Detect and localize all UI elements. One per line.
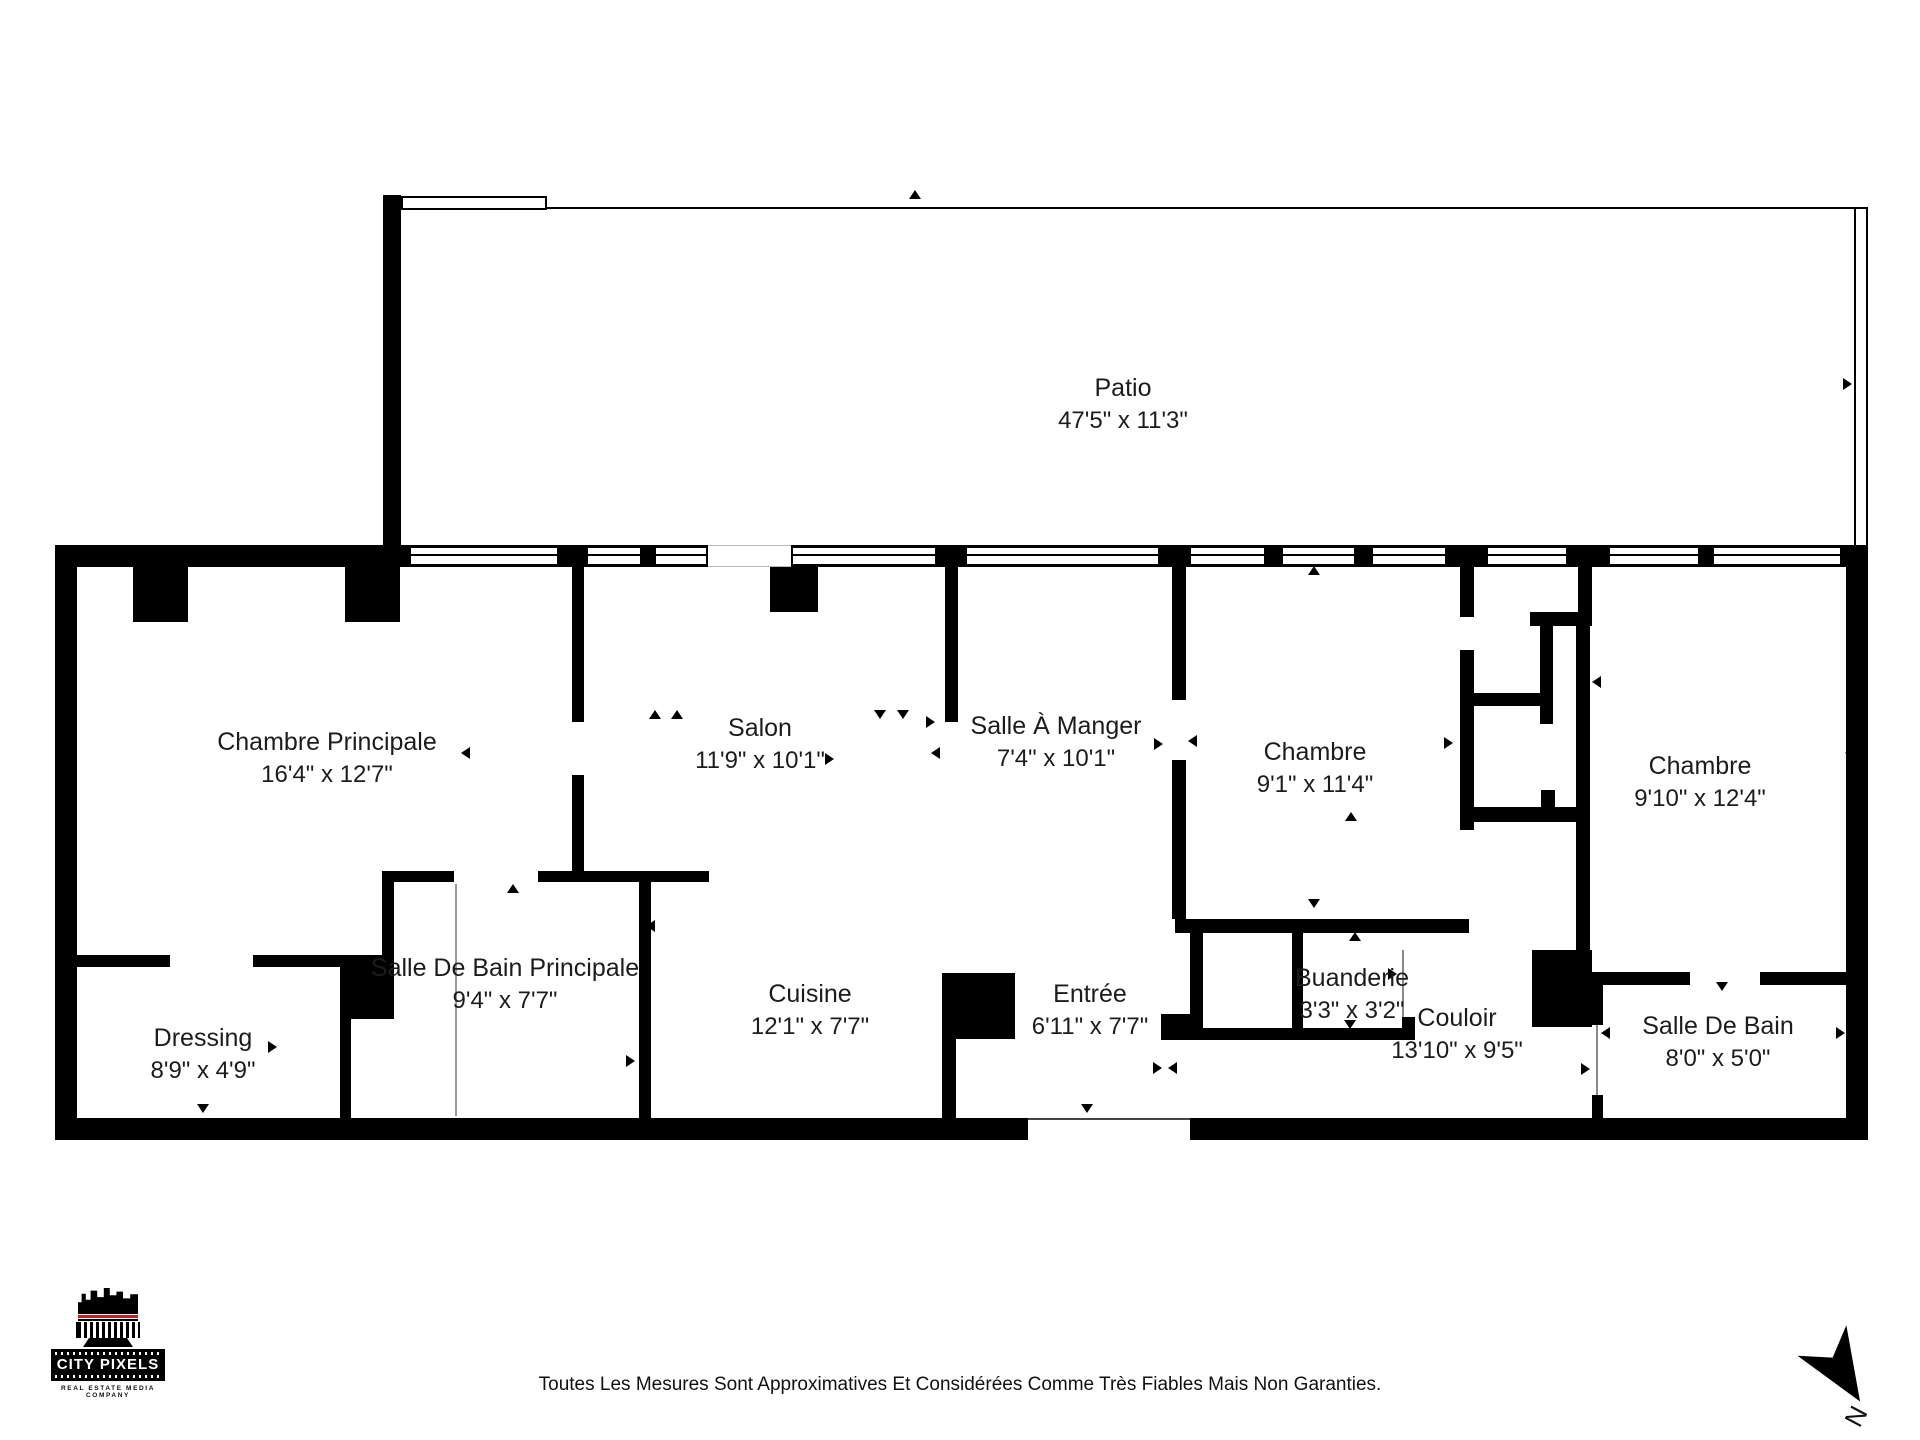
logo-tagline: REAL ESTATE MEDIA COMPANY bbox=[50, 1385, 166, 1399]
room-label-salon: Salon11'9" x 10'1" bbox=[695, 712, 825, 777]
door-marker-icon bbox=[1081, 1104, 1093, 1113]
wall bbox=[345, 567, 400, 622]
door-marker-icon bbox=[874, 710, 886, 719]
wall bbox=[340, 1019, 351, 1118]
wall bbox=[1592, 985, 1603, 1025]
door-marker-icon bbox=[931, 747, 940, 759]
window bbox=[1486, 546, 1568, 566]
wall bbox=[1172, 567, 1186, 700]
window bbox=[586, 546, 642, 566]
room-label-dressing: Dressing8'9" x 4'9" bbox=[151, 1022, 256, 1087]
window bbox=[1608, 546, 1700, 566]
door-marker-icon bbox=[926, 716, 935, 728]
room-label-cuisine: Cuisine12'1" x 7'7" bbox=[751, 978, 869, 1043]
wall bbox=[1592, 1095, 1603, 1118]
wall bbox=[1541, 790, 1555, 807]
door-marker-icon bbox=[1845, 747, 1854, 759]
north-arrow-icon bbox=[1791, 1321, 1890, 1420]
wall bbox=[1576, 612, 1590, 985]
wall bbox=[1460, 693, 1540, 706]
patio-railing bbox=[1854, 207, 1868, 547]
wall bbox=[1175, 919, 1469, 933]
room-label-salle-de-bain: Salle De Bain8'0" x 5'0" bbox=[1642, 1010, 1793, 1075]
logo-skyline-icon bbox=[78, 1288, 138, 1314]
wall bbox=[639, 880, 651, 1118]
window bbox=[1189, 546, 1266, 566]
room-label-entree: Entrée6'11" x 7'7" bbox=[1032, 978, 1149, 1043]
entry-opening-line bbox=[1028, 1118, 1190, 1120]
patio-edge-line bbox=[546, 207, 1858, 209]
wall bbox=[1190, 1028, 1415, 1040]
wall bbox=[1578, 567, 1592, 612]
door-marker-icon bbox=[461, 747, 470, 759]
door-marker-icon bbox=[58, 1041, 67, 1053]
wall bbox=[1846, 545, 1868, 1140]
door-marker-icon bbox=[1444, 737, 1453, 749]
logo-film-strip: CITY PIXELS bbox=[51, 1349, 165, 1381]
wall bbox=[55, 1118, 1028, 1140]
door-marker-icon bbox=[1345, 812, 1357, 821]
wall bbox=[1760, 972, 1868, 985]
door-marker-icon bbox=[825, 753, 834, 765]
door-marker-icon bbox=[1154, 738, 1163, 750]
wall bbox=[1472, 807, 1576, 822]
door-marker-icon bbox=[1592, 676, 1601, 688]
logo-red-stripe bbox=[78, 1315, 138, 1318]
window bbox=[409, 546, 559, 566]
door-marker-icon bbox=[897, 710, 909, 719]
door-marker-icon bbox=[1601, 1027, 1610, 1039]
door-marker-icon bbox=[671, 710, 683, 719]
door-marker-icon bbox=[268, 1041, 277, 1053]
door-marker-icon bbox=[1349, 932, 1361, 941]
wall bbox=[55, 955, 170, 967]
wall bbox=[1161, 1014, 1190, 1040]
door-marker-icon bbox=[1188, 735, 1197, 747]
compass: N bbox=[1795, 1335, 1905, 1440]
room-label-salle-a-manger: Salle À Manger7'4" x 10'1" bbox=[971, 710, 1142, 775]
wall bbox=[1172, 760, 1186, 919]
wall bbox=[1190, 1118, 1868, 1140]
film-sprockets-icon bbox=[55, 1352, 161, 1355]
wall bbox=[1460, 567, 1474, 617]
door-line bbox=[1596, 1025, 1598, 1095]
wall bbox=[1590, 972, 1690, 985]
door-marker-icon bbox=[507, 884, 519, 893]
room-label-patio: Patio47'5" x 11'3" bbox=[1058, 372, 1188, 437]
wall bbox=[133, 567, 188, 622]
wall bbox=[538, 871, 709, 882]
wall bbox=[253, 955, 382, 967]
disclaimer-text: Toutes Les Mesures Sont Approximatives E… bbox=[539, 1374, 1382, 1396]
door-marker-icon bbox=[649, 710, 661, 719]
room-label-chambre-3: Chambre9'10" x 12'4" bbox=[1634, 750, 1766, 815]
film-sprockets-icon bbox=[55, 1375, 161, 1378]
door-marker-icon bbox=[58, 747, 67, 759]
wall bbox=[55, 545, 400, 567]
north-label: N bbox=[1838, 1401, 1874, 1432]
wall bbox=[945, 567, 958, 722]
window bbox=[1281, 546, 1356, 566]
wall bbox=[770, 567, 818, 612]
door-marker-icon bbox=[197, 1104, 209, 1113]
patio-railing bbox=[401, 196, 547, 210]
door-marker-icon bbox=[1581, 1063, 1590, 1075]
wall bbox=[383, 195, 401, 567]
city-pixels-logo: CITY PIXELS REAL ESTATE MEDIA COMPANY bbox=[50, 1288, 166, 1399]
wall bbox=[1540, 612, 1553, 724]
wall bbox=[1532, 950, 1592, 1027]
room-label-chambre-principale: Chambre Principale16'4" x 12'7" bbox=[217, 726, 437, 791]
room-label-chambre-2: Chambre9'1" x 11'4" bbox=[1257, 736, 1374, 801]
logo-lens-mount-icon bbox=[83, 1338, 133, 1347]
window bbox=[1712, 546, 1842, 566]
door-marker-icon bbox=[1153, 1062, 1162, 1074]
room-label-salle-de-bain-principale: Salle De Bain Principale9'4" x 7'7" bbox=[371, 952, 639, 1017]
wall bbox=[1190, 932, 1203, 1028]
wall bbox=[1460, 650, 1474, 830]
door-marker-icon bbox=[1836, 1027, 1845, 1039]
floor-plan-page: Patio47'5" x 11'3" Chambre Principale16'… bbox=[0, 0, 1920, 1440]
logo-divider bbox=[78, 1319, 138, 1321]
door-marker-icon bbox=[909, 190, 921, 199]
wall bbox=[572, 775, 584, 872]
window bbox=[791, 546, 937, 566]
wall bbox=[572, 567, 584, 722]
door-marker-icon bbox=[1168, 1062, 1177, 1074]
door-marker-icon bbox=[1716, 982, 1728, 991]
logo-lens-stripes-icon bbox=[76, 1322, 140, 1338]
window bbox=[654, 546, 708, 566]
door-marker-icon bbox=[626, 1055, 635, 1067]
door-marker-icon bbox=[1308, 899, 1320, 908]
wall bbox=[942, 973, 1015, 1039]
window bbox=[1371, 546, 1447, 566]
door-marker-icon bbox=[646, 920, 655, 932]
logo-name: CITY PIXELS bbox=[51, 1356, 165, 1374]
window bbox=[965, 546, 1160, 566]
door-marker-icon bbox=[1843, 378, 1852, 390]
room-label-couloir: Couloir13'10" x 9'5" bbox=[1391, 1002, 1523, 1067]
patio-door-opening bbox=[708, 545, 791, 567]
door-marker-icon bbox=[1308, 566, 1320, 575]
